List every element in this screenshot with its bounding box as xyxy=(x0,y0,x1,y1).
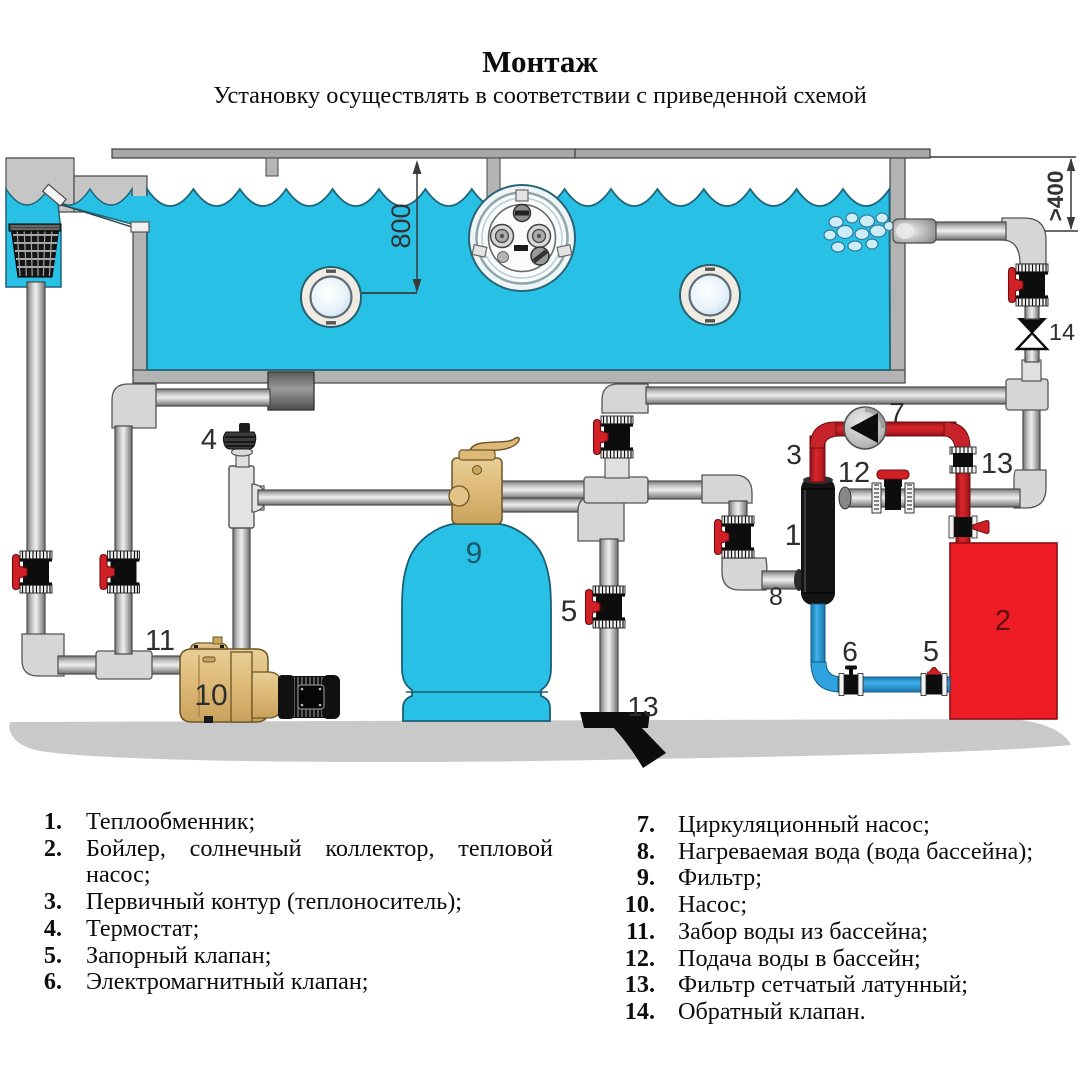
svg-text:4: 4 xyxy=(201,424,217,456)
svg-text:5: 5 xyxy=(923,636,939,668)
svg-text:>400: >400 xyxy=(1043,171,1068,222)
svg-text:1: 1 xyxy=(785,519,802,552)
svg-text:8: 8 xyxy=(769,583,783,611)
svg-text:13: 13 xyxy=(981,448,1013,480)
svg-text:6: 6 xyxy=(842,636,858,667)
svg-text:10: 10 xyxy=(194,679,227,712)
svg-text:9: 9 xyxy=(466,537,483,570)
svg-text:800: 800 xyxy=(386,203,416,248)
svg-text:5: 5 xyxy=(561,595,578,628)
svg-text:12: 12 xyxy=(838,457,870,489)
svg-text:7: 7 xyxy=(889,397,905,428)
svg-text:13: 13 xyxy=(627,691,658,722)
svg-text:2: 2 xyxy=(995,605,1011,637)
svg-text:14: 14 xyxy=(1049,319,1075,345)
svg-text:11: 11 xyxy=(145,625,175,657)
svg-text:3: 3 xyxy=(786,439,802,470)
